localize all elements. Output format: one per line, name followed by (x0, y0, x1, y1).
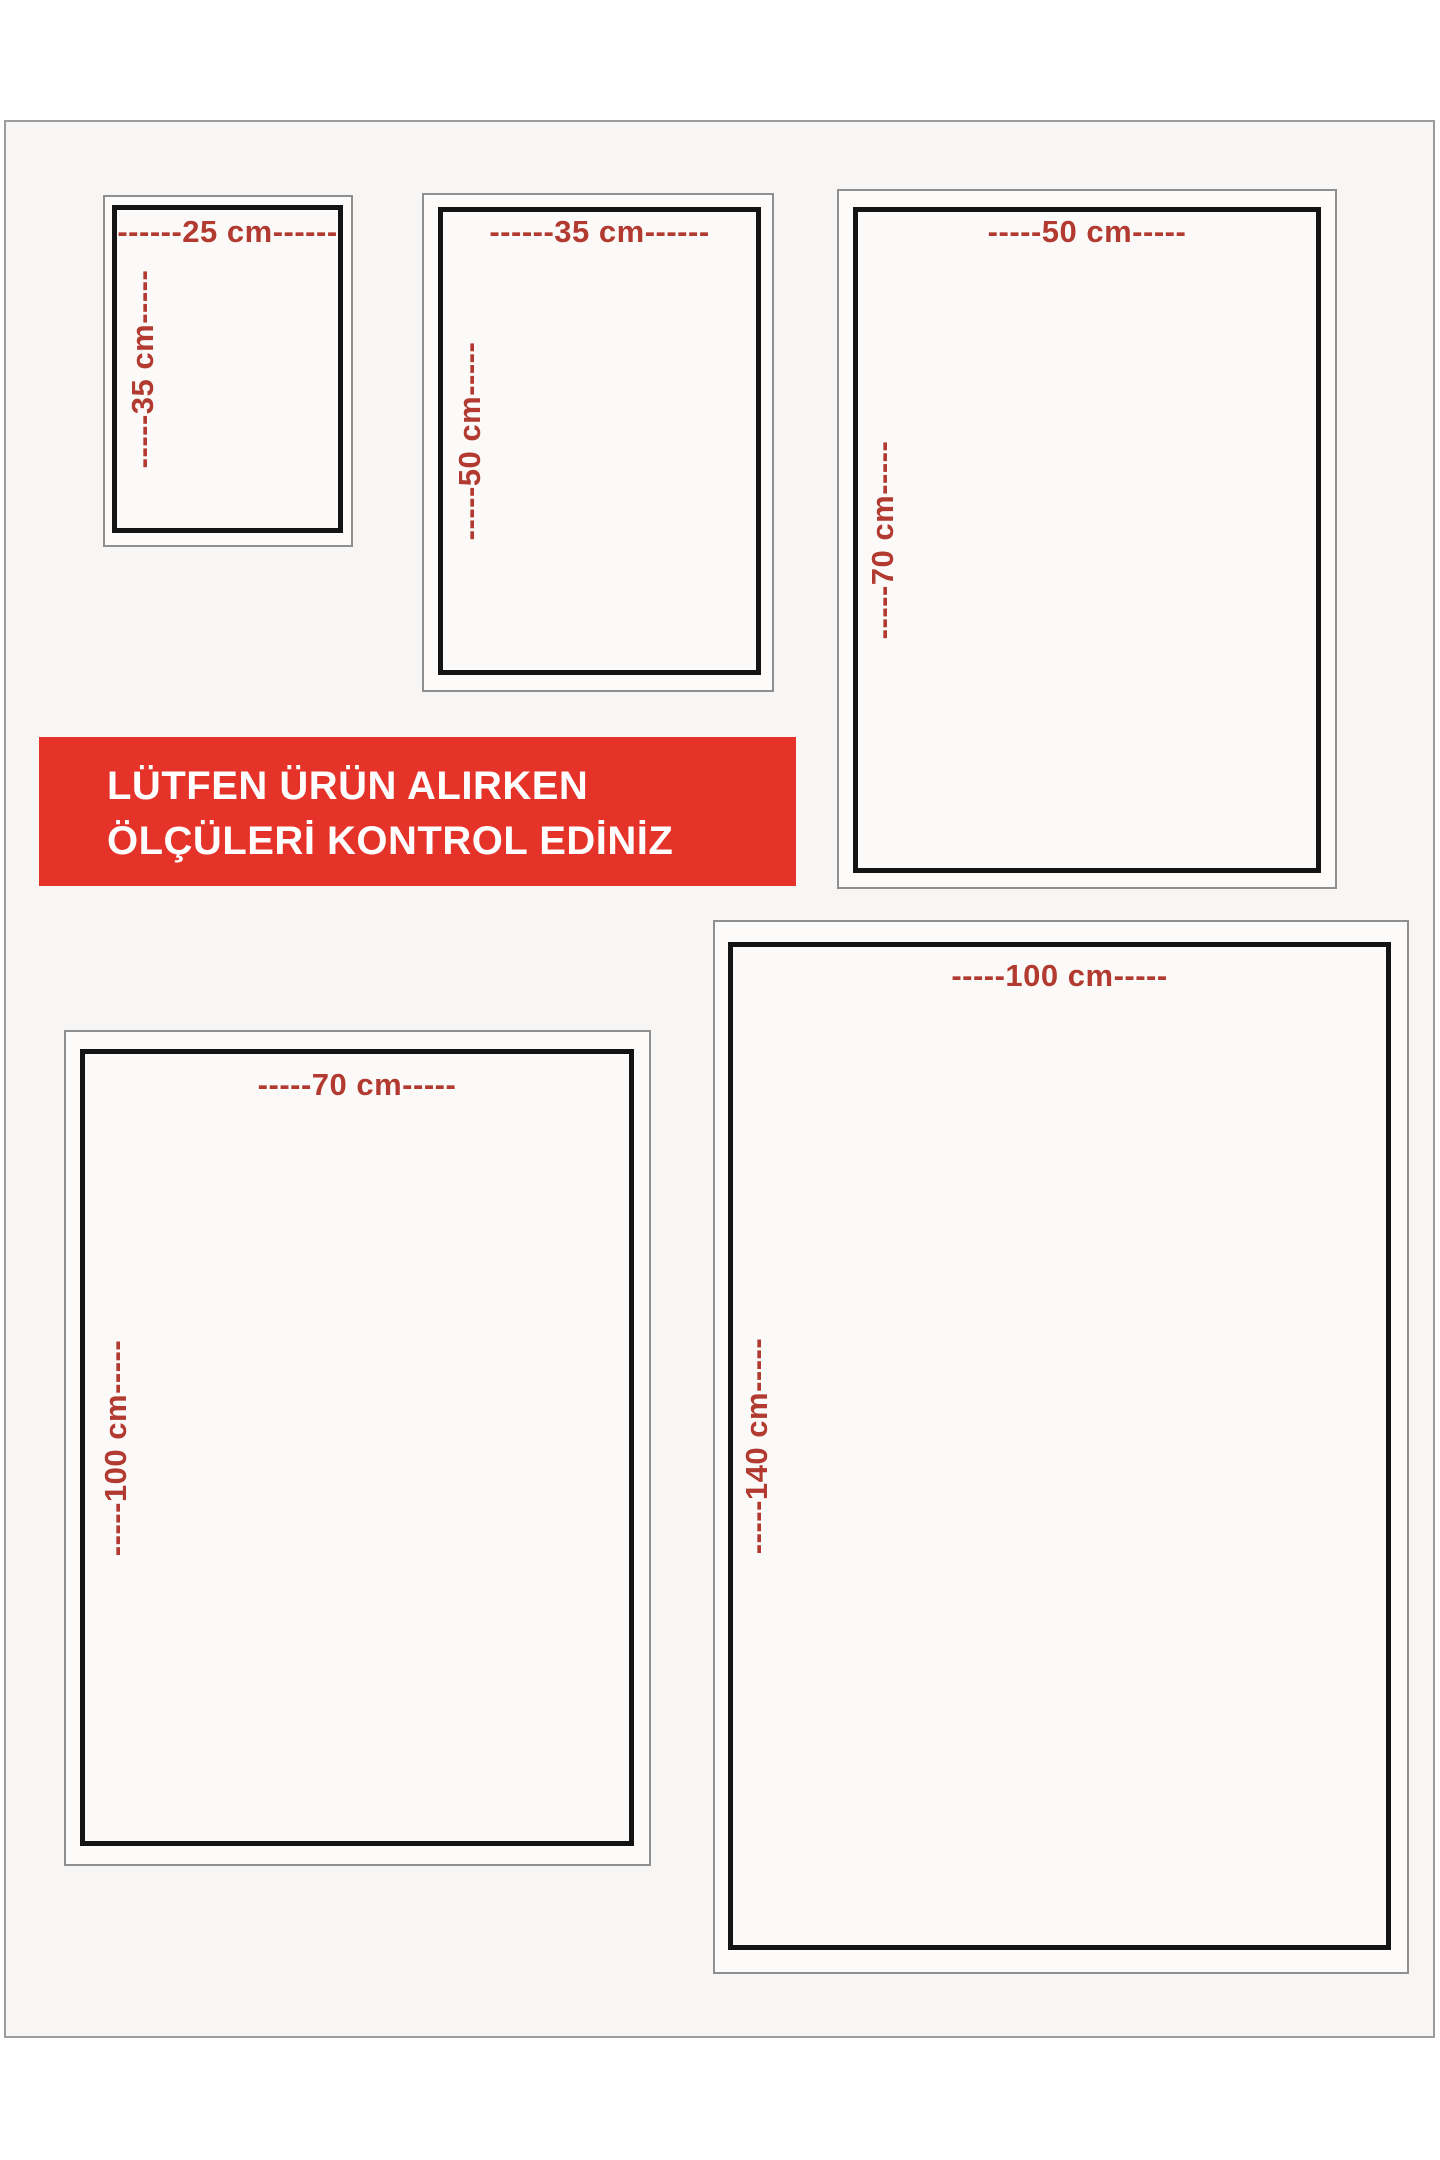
height-label-50cm: -----50 cm----- (452, 342, 488, 541)
height-label-100cm: -----100 cm----- (98, 1339, 134, 1555)
width-label-25cm: ------25 cm------ (117, 214, 338, 250)
height-label-35cm: -----35 cm----- (125, 270, 161, 469)
size-paper-70x100: -----70 cm----- -----100 cm----- (80, 1049, 634, 1846)
notice-banner-line-2: ÖLÇÜLERİ KONTROL EDİNİZ (107, 814, 796, 869)
notice-banner: LÜTFEN ÜRÜN ALIRKEN ÖLÇÜLERİ KONTROL EDİ… (39, 737, 796, 886)
width-label-50cm: -----50 cm----- (858, 214, 1316, 250)
height-label-70cm: -----70 cm----- (865, 441, 901, 640)
size-paper-100x140: -----100 cm----- -----140 cm----- (728, 942, 1391, 1950)
width-label-35cm: ------35 cm------ (443, 214, 756, 250)
size-paper-50x70: -----50 cm----- -----70 cm----- (853, 207, 1321, 873)
width-label-70cm: -----70 cm----- (85, 1067, 629, 1103)
height-label-140cm: -----140 cm----- (739, 1338, 775, 1554)
notice-banner-line-1: LÜTFEN ÜRÜN ALIRKEN (107, 759, 796, 814)
width-label-100cm: -----100 cm----- (733, 958, 1386, 994)
size-guide-canvas: ------25 cm------ -----35 cm----- ------… (0, 0, 1440, 2160)
size-paper-25x35: ------25 cm------ -----35 cm----- (112, 205, 343, 533)
size-paper-35x50: ------35 cm------ -----50 cm----- (438, 207, 761, 675)
